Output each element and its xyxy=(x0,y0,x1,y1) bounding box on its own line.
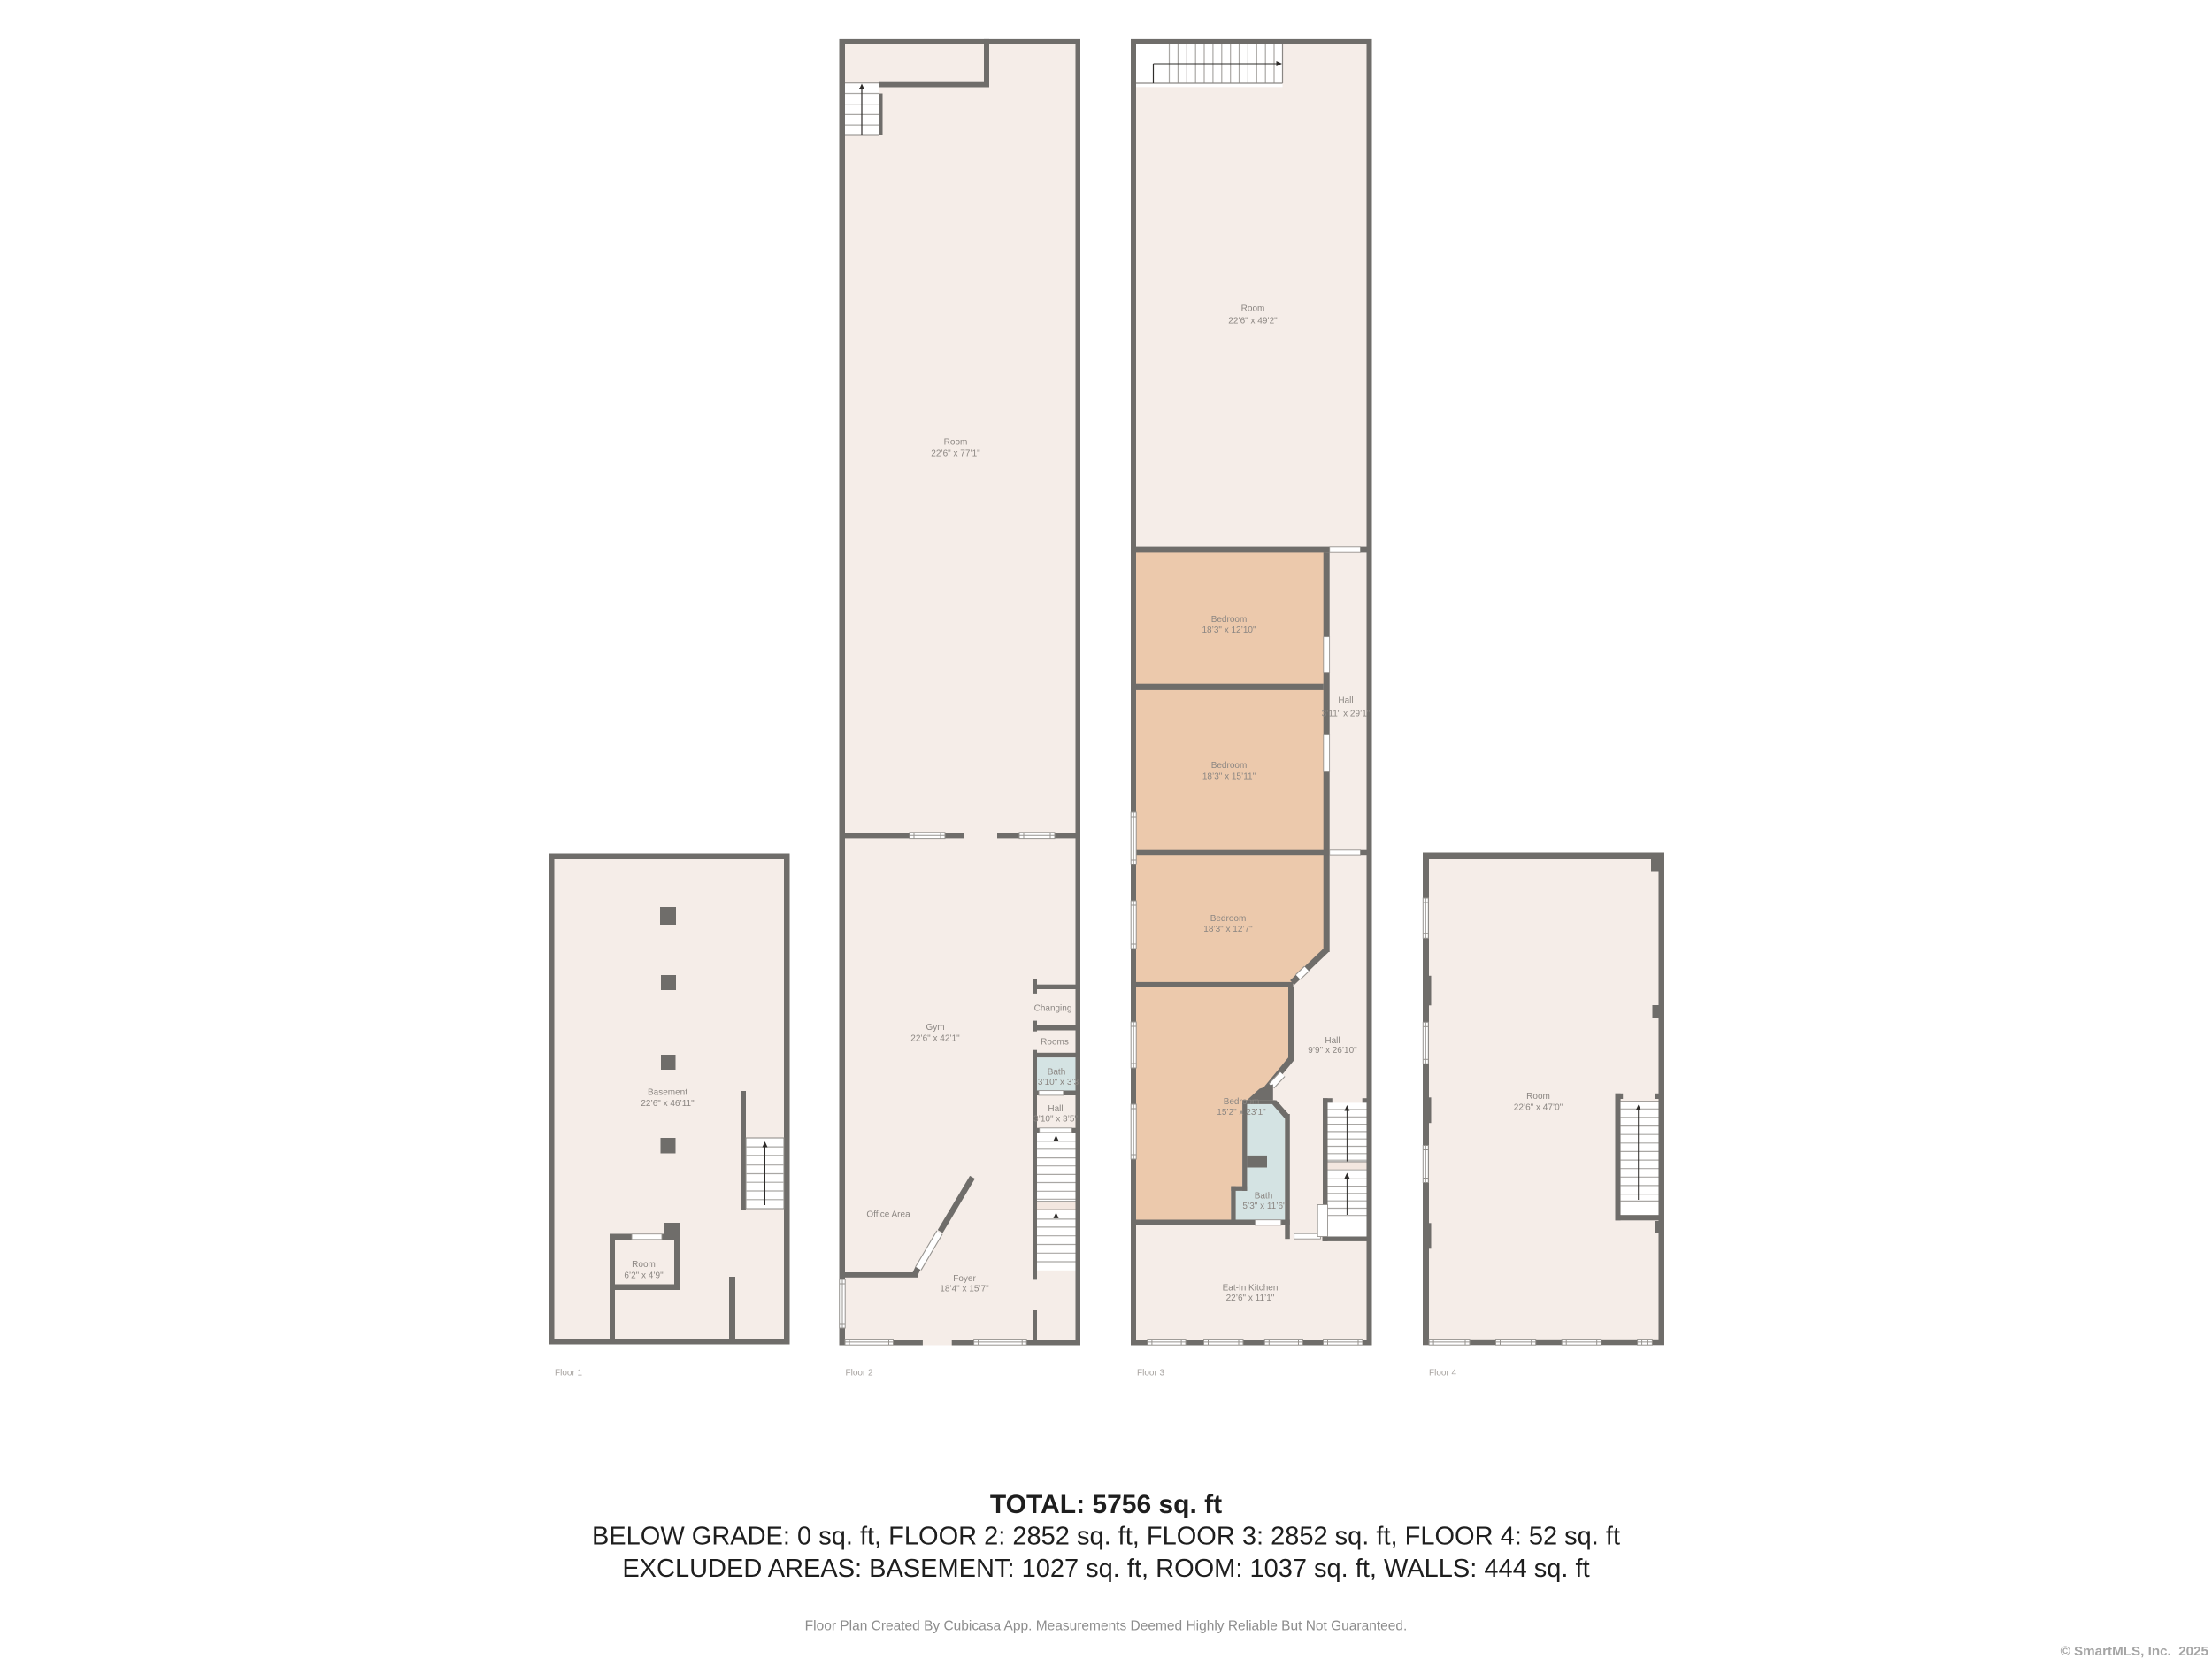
svg-text:9’9" x 26’10": 9’9" x 26’10" xyxy=(1308,1046,1357,1056)
svg-text:Bedroom: Bedroom xyxy=(1224,1097,1260,1107)
svg-text:Bedroom: Bedroom xyxy=(1211,615,1248,625)
svg-text:Floor 2: Floor 2 xyxy=(846,1369,874,1379)
svg-text:Floor 4: Floor 4 xyxy=(1429,1369,1457,1379)
svg-text:3’10" x 3’3: 3’10" x 3’3 xyxy=(1038,1078,1079,1087)
svg-text:Bedroom: Bedroom xyxy=(1210,914,1247,924)
svg-text:Foyer: Foyer xyxy=(953,1274,976,1284)
svg-text:22’6" x 49’2": 22’6" x 49’2" xyxy=(1228,317,1278,326)
svg-text:18’3" x 15’11": 18’3" x 15’11" xyxy=(1202,772,1256,782)
svg-text:© SmartMLS, Inc. 2025: © SmartMLS, Inc. 2025 xyxy=(2061,1644,2209,1659)
svg-text:Hall: Hall xyxy=(1048,1104,1063,1114)
svg-text:TOTAL: 5756 sq. ft: TOTAL: 5756 sq. ft xyxy=(990,1490,1222,1519)
svg-text:Rooms: Rooms xyxy=(1041,1038,1069,1048)
svg-text:22’6" x 11’1": 22’6" x 11’1" xyxy=(1226,1294,1275,1303)
svg-text:Office Area: Office Area xyxy=(866,1210,910,1220)
svg-text:Basement: Basement xyxy=(648,1088,687,1098)
svg-text:Room: Room xyxy=(1526,1092,1550,1102)
svg-text:Bath: Bath xyxy=(1255,1192,1273,1202)
svg-text:18’3" x 12’10": 18’3" x 12’10" xyxy=(1202,626,1256,635)
svg-text:22’6" x 47’0": 22’6" x 47’0" xyxy=(1514,1103,1563,1113)
svg-text:EXCLUDED AREAS: BASEMENT: 1027: EXCLUDED AREAS: BASEMENT: 1027 sq. ft, R… xyxy=(622,1555,1589,1583)
svg-text:Bath: Bath xyxy=(1048,1067,1066,1077)
svg-text:Eat-In Kitchen: Eat-In Kitchen xyxy=(1223,1283,1279,1293)
svg-text:22’6" x 77’1": 22’6" x 77’1" xyxy=(931,449,980,459)
svg-text:18’3" x 12’7": 18’3" x 12’7" xyxy=(1203,925,1253,934)
svg-text:Hall: Hall xyxy=(1325,1036,1340,1046)
svg-text:BELOW GRADE: 0 sq. ft, FLOOR 2: BELOW GRADE: 0 sq. ft, FLOOR 2: 2852 sq.… xyxy=(592,1523,1620,1551)
svg-text:22’6" x 42’1": 22’6" x 42’1" xyxy=(910,1033,960,1043)
svg-text:Floor 1: Floor 1 xyxy=(555,1369,583,1379)
svg-text:15’2" x 23’1": 15’2" x 23’1" xyxy=(1217,1108,1266,1118)
svg-text:Floor 3: Floor 3 xyxy=(1137,1369,1165,1379)
svg-text:5’3" x 11’6": 5’3" x 11’6" xyxy=(1242,1202,1286,1211)
svg-text:Bedroom: Bedroom xyxy=(1211,761,1248,771)
svg-text:3’10" x 3’5": 3’10" x 3’5" xyxy=(1033,1115,1078,1125)
svg-text:Floor Plan Created By Cubicasa: Floor Plan Created By Cubicasa App. Meas… xyxy=(805,1619,1408,1634)
svg-text:Room: Room xyxy=(944,438,968,448)
svg-text:22’6" x 46’11": 22’6" x 46’11" xyxy=(641,1099,695,1109)
svg-text:Gym: Gym xyxy=(926,1023,944,1033)
svg-text:18’4" x 15’7": 18’4" x 15’7" xyxy=(940,1284,989,1294)
svg-text:Room: Room xyxy=(632,1260,656,1270)
svg-text:Hall: Hall xyxy=(1338,696,1353,706)
svg-text:Changing: Changing xyxy=(1034,1003,1072,1013)
svg-text:Room: Room xyxy=(1241,304,1265,314)
svg-text:3’11" x 29’1": 3’11" x 29’1" xyxy=(1322,709,1371,718)
svg-text:6’2" x 4’9": 6’2" x 4’9" xyxy=(624,1271,664,1281)
